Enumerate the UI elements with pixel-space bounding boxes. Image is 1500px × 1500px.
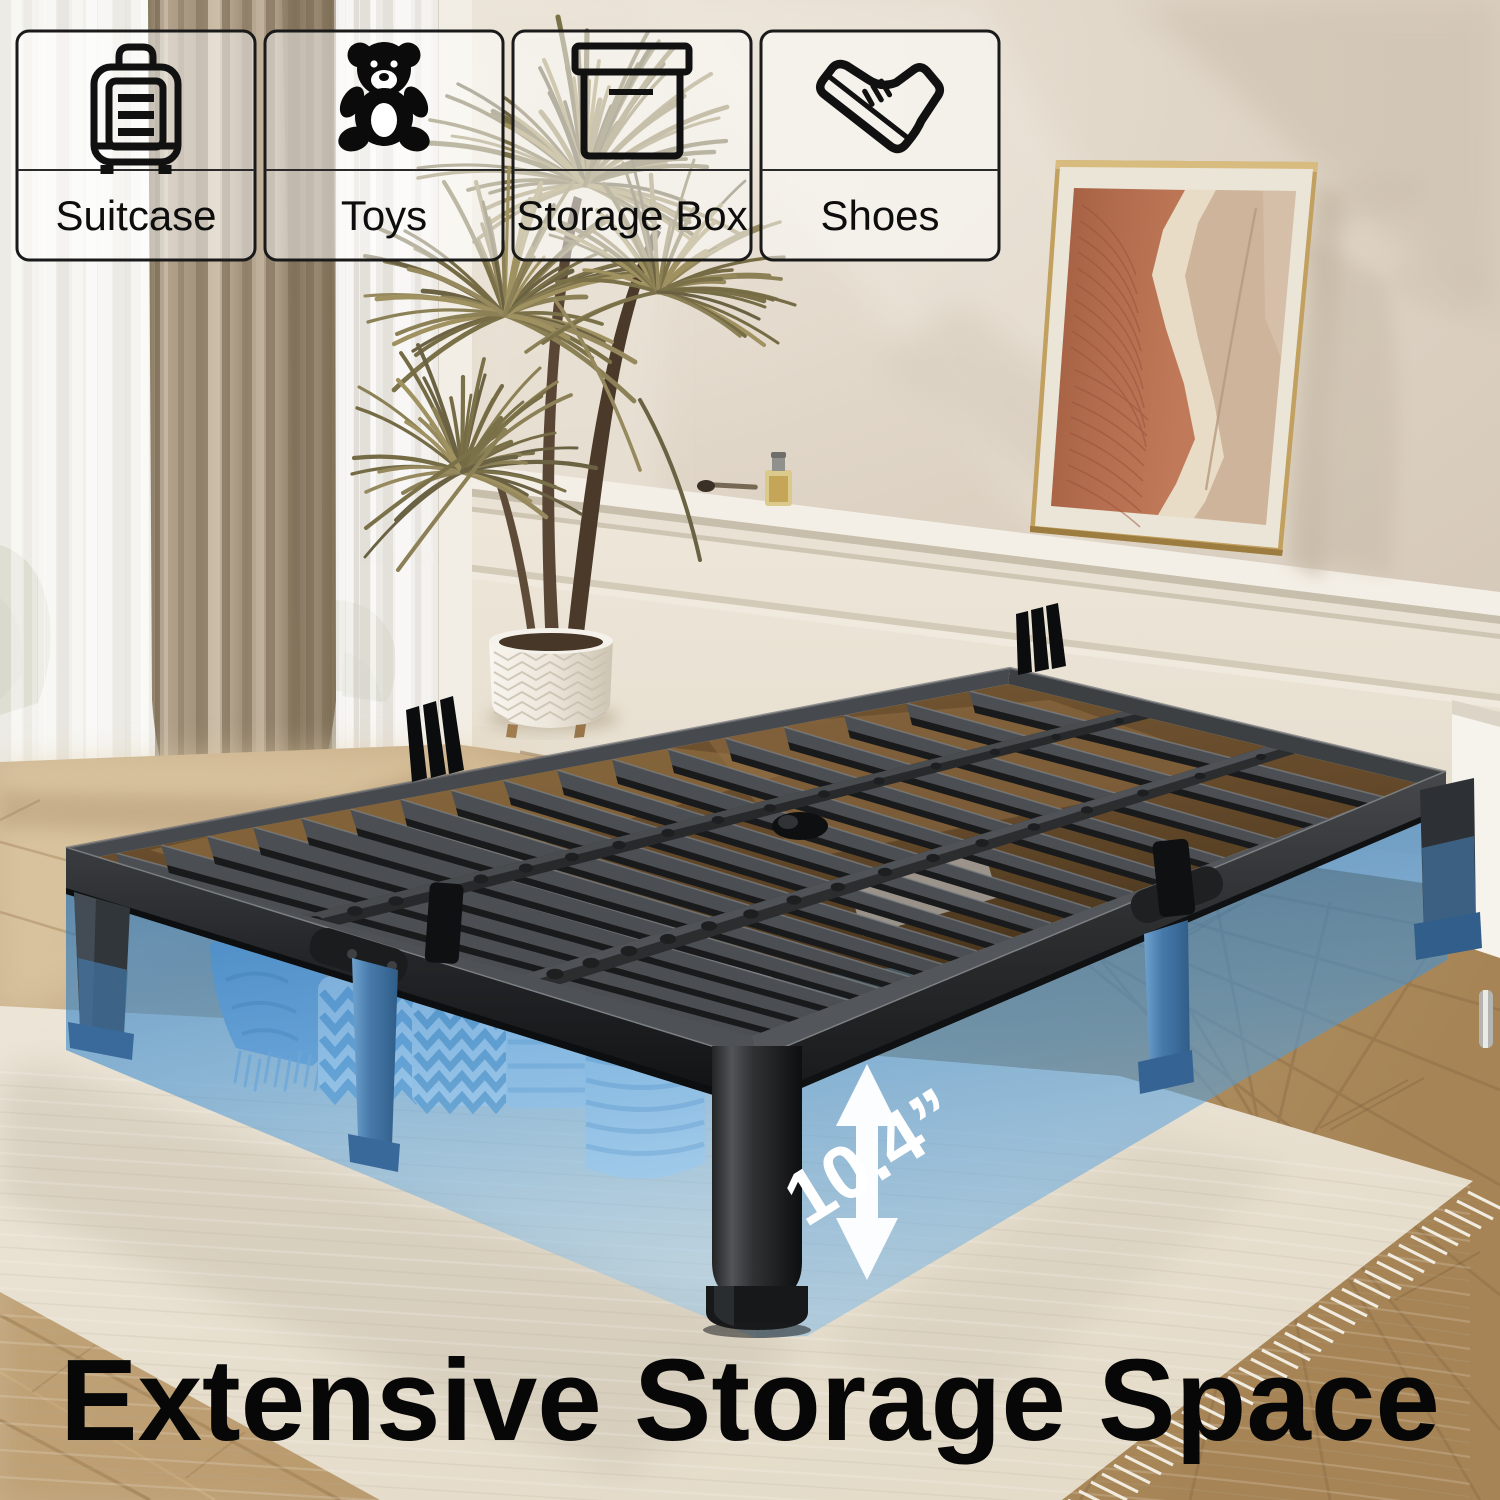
svg-text:Storage Box: Storage Box — [516, 192, 747, 239]
svg-text:Suitcase: Suitcase — [55, 192, 216, 239]
svg-text:Toys: Toys — [341, 192, 427, 239]
svg-text:Shoes: Shoes — [820, 192, 939, 239]
svg-text:Extensive Storage Space: Extensive Storage Space — [60, 1335, 1440, 1465]
